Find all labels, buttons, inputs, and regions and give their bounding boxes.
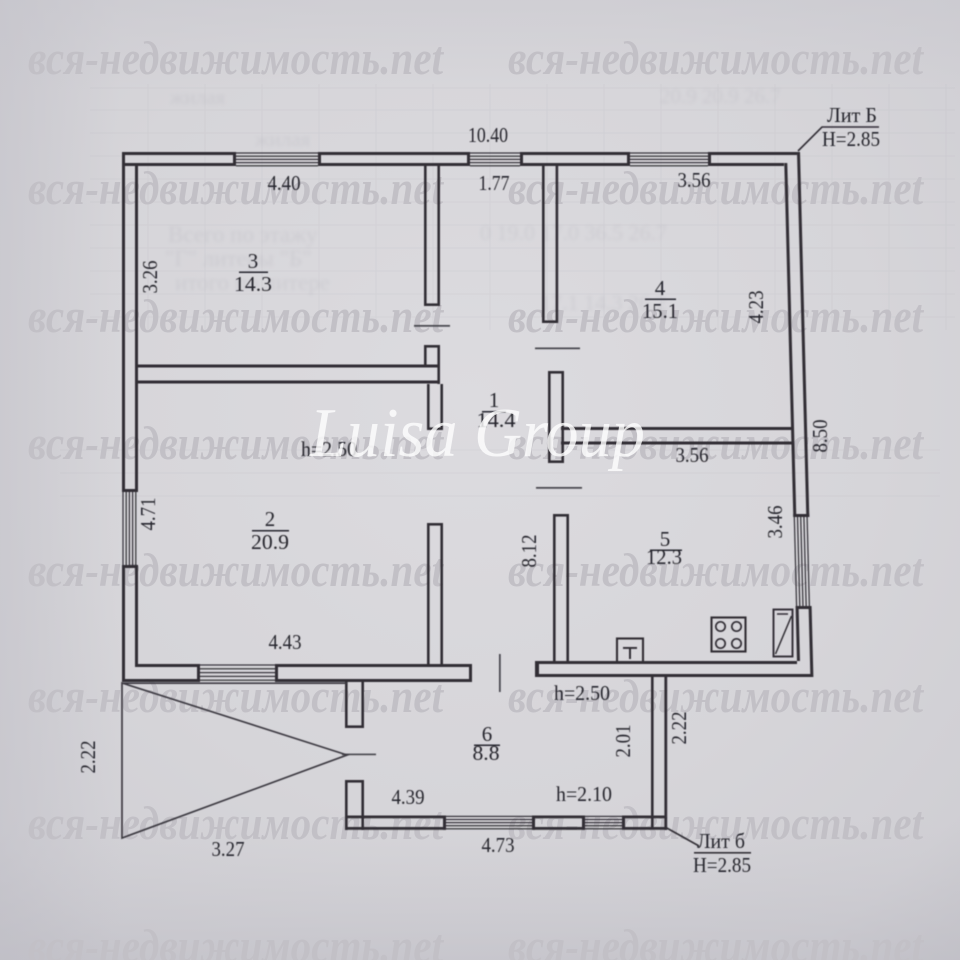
svg-text:вся-недвижимость.net: вся-недвижимость.net <box>28 32 444 85</box>
svg-text:10.40: 10.40 <box>468 123 508 147</box>
svg-text:h=2.10: h=2.10 <box>556 782 612 806</box>
svg-text:3.27: 3.27 <box>212 837 245 861</box>
svg-text:1.77: 1.77 <box>479 171 510 195</box>
svg-text:4.39: 4.39 <box>392 785 425 809</box>
svg-text:4.73: 4.73 <box>482 833 515 857</box>
svg-text:3: 3 <box>248 249 259 273</box>
svg-text:2.01: 2.01 <box>611 725 635 758</box>
svg-text:Лит Б: Лит Б <box>827 103 877 127</box>
svg-text:вся-недвижимость.net: вся-недвижимость.net <box>28 544 444 597</box>
svg-text:h=2.50: h=2.50 <box>554 681 610 705</box>
svg-text:15.1: 15.1 <box>642 299 678 323</box>
svg-text:Лит б: Лит б <box>697 829 745 853</box>
svg-text:2: 2 <box>265 507 276 531</box>
svg-text:вся-недвижимость.net: вся-недвижимость.net <box>28 162 444 215</box>
svg-text:Luisa Group: Luisa Group <box>309 395 645 472</box>
svg-text:3.26: 3.26 <box>138 261 162 294</box>
svg-text:вся-недвижимость.net: вся-недвижимость.net <box>508 920 924 960</box>
svg-text:4.40: 4.40 <box>268 171 301 195</box>
svg-text:3.46: 3.46 <box>763 506 787 539</box>
svg-text:14.3: 14.3 <box>234 272 272 296</box>
svg-text:вся-недвижимость.net: вся-недвижимость.net <box>508 544 924 597</box>
svg-text:вся-недвижимость.net: вся-недвижимость.net <box>508 290 924 343</box>
svg-text:жилая: жилая <box>169 85 226 109</box>
svg-text:вся-недвижимость.net: вся-недвижимость.net <box>508 162 924 215</box>
svg-text:4.71: 4.71 <box>136 498 160 531</box>
svg-text:H=2.85: H=2.85 <box>822 127 880 151</box>
svg-text:вся-недвижимость.net: вся-недвижимость.net <box>28 290 444 343</box>
svg-text:3.56: 3.56 <box>676 443 709 467</box>
svg-text:20.9: 20.9 <box>251 530 289 554</box>
svg-text:20.9 20.9 26.7: 20.9 20.9 26.7 <box>660 84 781 108</box>
svg-text:2.22: 2.22 <box>76 741 100 774</box>
svg-text:8.12: 8.12 <box>517 535 541 568</box>
svg-text:0 19.0 17.0 36.5 26.7: 0 19.0 17.0 36.5 26.7 <box>480 220 667 245</box>
svg-text:жилая: жилая <box>254 127 311 151</box>
svg-text:4.43: 4.43 <box>269 630 302 654</box>
svg-text:4: 4 <box>655 276 666 300</box>
svg-text:4.23: 4.23 <box>744 291 768 324</box>
svg-text:2.22: 2.22 <box>667 712 691 745</box>
svg-text:"Г" литеры "Б": "Г" литеры "Б" <box>165 246 312 271</box>
svg-text:вся-недвижимость.net: вся-недвижимость.net <box>28 670 444 723</box>
svg-text:3.56: 3.56 <box>678 168 711 192</box>
svg-text:вся-недвижимость.net: вся-недвижимость.net <box>508 32 924 85</box>
svg-text:12.3: 12.3 <box>646 545 682 569</box>
svg-text:Всего по этажу: Всего по этажу <box>168 222 318 247</box>
svg-text:8.8: 8.8 <box>473 741 500 765</box>
svg-text:вся-недвижимость.net: вся-недвижимость.net <box>28 920 444 960</box>
svg-text:8.50: 8.50 <box>808 420 832 453</box>
svg-text:H=2.85: H=2.85 <box>693 853 751 877</box>
